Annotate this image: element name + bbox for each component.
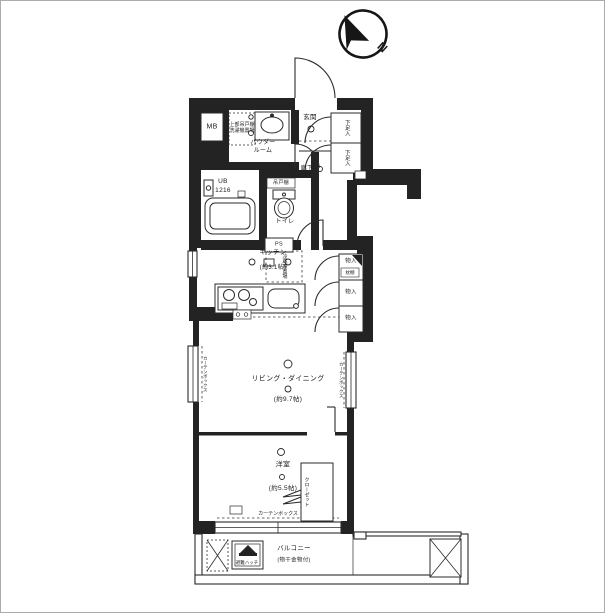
balcony-wall-bottom	[195, 575, 468, 584]
toilet-flush-icon	[283, 193, 286, 196]
balcony-wall-top	[353, 532, 461, 536]
light-ld-icon-2	[285, 386, 291, 392]
burner-1	[224, 290, 235, 301]
balcony-note-label: (物干金物付)	[277, 557, 310, 564]
wall-storage-right	[363, 250, 373, 338]
light-bedroom-icon-1	[278, 449, 285, 456]
partition-ld-bedroom-left	[199, 432, 307, 436]
laundry-tap-icon	[249, 115, 253, 119]
vanity-basin	[261, 117, 283, 133]
light-bedroom-icon-2	[280, 475, 285, 480]
grill	[222, 303, 237, 309]
bedroom-label: 洋室	[276, 460, 291, 469]
shoe-cabinet-top-label: 下足入	[343, 120, 349, 137]
unit-bath-label: UB	[218, 178, 228, 186]
kitchen-label: キッチン	[259, 249, 286, 257]
curtain-box-left-label: カーテンボックス	[203, 356, 208, 392]
bathtub-inner	[210, 203, 250, 229]
escape-hatch-bar	[239, 553, 257, 556]
wall-right-ld2	[347, 408, 354, 534]
wall-right-ld1	[347, 342, 354, 352]
light-ld-icon-1	[284, 360, 292, 368]
wall-powder-bottom	[227, 162, 299, 170]
escape-hatch-label: 避難ハッチ	[236, 560, 259, 566]
bath-drain-icon	[238, 191, 245, 197]
ac-sleeve-box	[230, 506, 242, 514]
entrance-label: 玄関	[303, 114, 317, 122]
entrance-door-arc	[295, 58, 335, 98]
fixtures	[201, 112, 461, 577]
kitchen-remote-dial-2	[244, 313, 248, 317]
toilet-bowl-inner	[278, 202, 290, 215]
kitchen-remote-dial-1	[236, 313, 240, 317]
wall-hall-right	[347, 180, 357, 250]
meter-box-label: MB	[206, 122, 217, 131]
pipe-space-label: PS	[275, 241, 283, 248]
wall-left-k2	[189, 277, 197, 307]
wall-bottom-left	[199, 521, 215, 534]
wall-porch-step	[407, 185, 421, 199]
light-kitchen-icon-1	[249, 259, 255, 265]
laundry-space-label: 上部吊戸棚 洗濯機置場	[229, 122, 254, 135]
wall-powder-right	[291, 110, 299, 144]
curtain-box-right-label: カーテンボックス	[339, 362, 344, 398]
living-dining-area-label: (約9.7帖)	[274, 396, 302, 404]
floorplan-drawing	[1, 1, 605, 613]
burner-3	[250, 299, 257, 306]
storage-shelf-note-label: 枕棚	[346, 270, 355, 276]
shoe-cabinet-bottom-label: 下足入	[343, 150, 349, 167]
burner-2	[239, 290, 250, 301]
floorplan-page: MB 上部吊戸棚 洗濯機置場 パウダー ルーム 玄関 下足入 下足入 廊下 UB…	[0, 0, 605, 613]
storage-middle-label: 物入	[345, 289, 357, 296]
bath-faucet-icon	[206, 186, 210, 190]
storage-door-arc-1	[315, 256, 339, 280]
wall-left-ld2	[193, 402, 199, 534]
storage-door-arc-2	[315, 282, 339, 306]
bedroom-area-label: (約5.5帖)	[269, 485, 297, 493]
partition-ld-bedroom-right	[335, 432, 347, 436]
powder-room-label: パウダー ルーム	[250, 140, 275, 156]
kitchen-area-label: (約3.1帖)	[260, 265, 286, 273]
kitchen-remote-box	[233, 310, 251, 319]
wall-left-ld1	[193, 321, 199, 346]
storage-top-label: 物入	[345, 258, 357, 265]
wall-bath-bottom	[201, 240, 265, 250]
closet-fold-door-2	[283, 497, 301, 504]
wall-jog	[347, 332, 373, 342]
storage-bottom-label: 物入	[345, 315, 357, 322]
balcony-hook-plate	[354, 532, 366, 539]
wall-bath-toilet	[259, 170, 267, 240]
wall-top-left	[189, 98, 295, 110]
storage-door-arc-3	[315, 308, 339, 332]
toilet-label: トイレ	[276, 219, 295, 227]
balcony-label: バルコニー	[277, 545, 311, 553]
curtain-box-bottom-label: カーテンボックス	[258, 511, 298, 518]
hallway-label: 廊下	[301, 166, 314, 174]
toilet-cabinet-label: 吊戸棚	[273, 180, 289, 187]
unit-bath-size-label: 1216	[215, 187, 231, 195]
living-dining-label: リビング・ダイニング	[252, 374, 325, 383]
wall-left-bath	[189, 170, 201, 248]
porch-terminal-box	[355, 171, 366, 179]
closet-label: クローゼット	[304, 477, 309, 507]
vanity-faucet-icon	[271, 114, 274, 117]
wall-bottom-right	[341, 521, 353, 534]
sink-faucet-icon	[294, 304, 299, 309]
